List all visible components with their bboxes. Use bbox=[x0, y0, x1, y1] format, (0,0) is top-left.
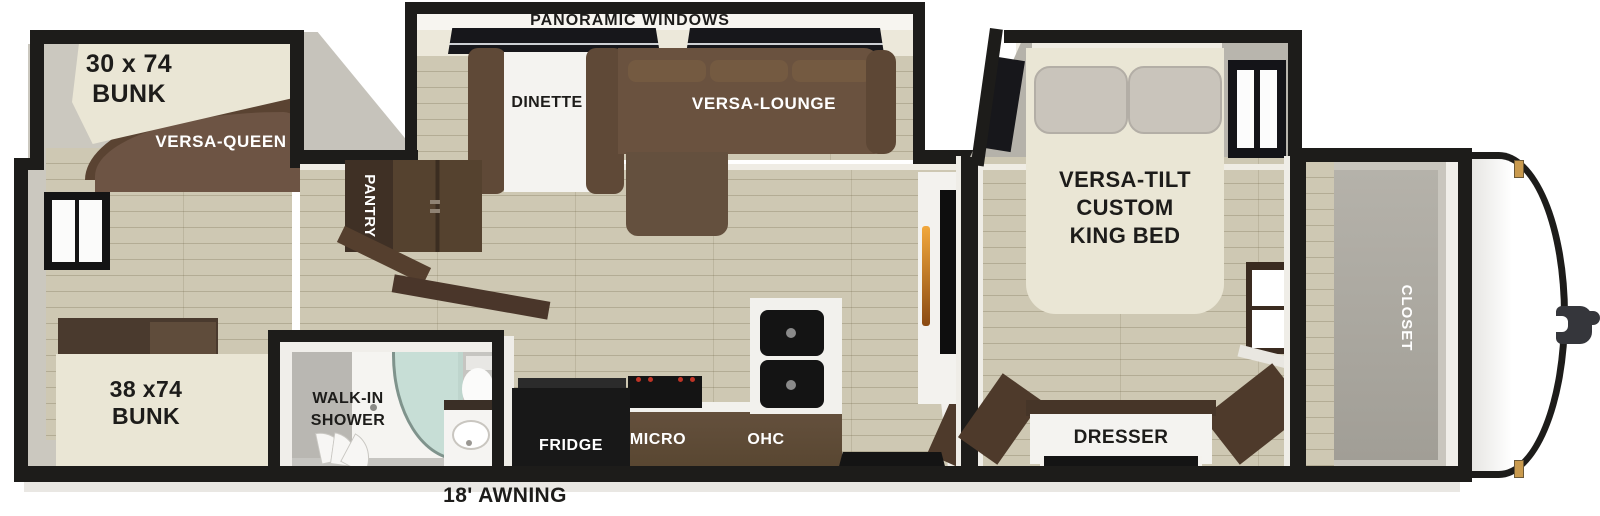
bedroom-right-window-pane2 bbox=[1260, 70, 1277, 148]
bunk-38x74-label-line2: BUNK bbox=[66, 403, 226, 430]
cooktop-knob-3 bbox=[678, 377, 683, 382]
pantry-handle-top bbox=[430, 200, 440, 204]
hitch-notch bbox=[1556, 316, 1568, 332]
bottom-wall bbox=[14, 466, 1472, 482]
living-slide-wall-right bbox=[913, 2, 925, 164]
closet-wall-left bbox=[1290, 148, 1306, 466]
king-bed-label-line3: KING BED bbox=[1030, 222, 1220, 250]
walk-in-shower-label-line2: SHOWER bbox=[296, 410, 400, 432]
king-bed-label-line1: VERSA-TILT bbox=[1030, 166, 1220, 194]
front-wall-band bbox=[1446, 162, 1458, 466]
versa-lounge-label: VERSA-LOUNGE bbox=[664, 94, 864, 114]
bedroom-slide-wall-right bbox=[1288, 30, 1302, 160]
living-slide-wall-top bbox=[405, 2, 925, 14]
dinette-label: DINETTE bbox=[502, 94, 592, 112]
bathroom-left-band bbox=[280, 342, 292, 466]
pantry-cabinet-front bbox=[393, 160, 482, 252]
sofa-chaise bbox=[626, 152, 728, 236]
front-cap bbox=[1472, 152, 1568, 478]
sofa-cushion-2 bbox=[710, 60, 788, 82]
vanity-backsplash bbox=[444, 400, 494, 410]
hitch-arm bbox=[1586, 311, 1600, 325]
versa-queen-label: VERSA-QUEEN bbox=[150, 133, 292, 152]
closet-wall-face bbox=[1334, 170, 1438, 460]
rear-wall-top bbox=[30, 30, 304, 44]
bunk-headboard-light bbox=[150, 322, 216, 356]
bathroom-top-band bbox=[280, 342, 492, 352]
vanity-sink bbox=[452, 420, 490, 450]
bathroom-wall-right bbox=[492, 330, 504, 466]
bedroom-slide-wall-top bbox=[1004, 30, 1300, 43]
bathroom-wall-left bbox=[268, 330, 280, 466]
cooktop-knob-2 bbox=[648, 377, 653, 382]
sofa-cushion-1 bbox=[628, 60, 706, 82]
living-slide-wall-left bbox=[405, 2, 417, 164]
bedroom-right-window-pane1 bbox=[1237, 70, 1254, 148]
closet-floor-strip bbox=[1306, 162, 1334, 466]
bunk-30x74-label-line2: BUNK bbox=[73, 80, 185, 110]
rear-wall-right bbox=[290, 30, 304, 168]
cap-marker-top bbox=[1514, 160, 1524, 178]
vanity-faucet bbox=[466, 440, 472, 446]
walk-in-shower-label-line1: WALK-IN bbox=[296, 388, 400, 410]
king-pillow-left bbox=[1034, 66, 1128, 134]
sofa-cushion-3 bbox=[792, 60, 872, 82]
rear-angled-wall-face bbox=[302, 32, 414, 154]
cap-marker-bottom bbox=[1514, 460, 1524, 478]
fridge-label: FRIDGE bbox=[518, 436, 624, 456]
king-bed-label-line2: CUSTOM bbox=[1030, 194, 1220, 222]
closet-label: CLOSET bbox=[1396, 268, 1416, 368]
awning-label: 18' AWNING bbox=[400, 483, 610, 509]
fireplace-glow bbox=[922, 226, 930, 326]
sink-drain-upper bbox=[786, 328, 796, 338]
front-wall bbox=[1458, 150, 1472, 466]
cooktop-knob-4 bbox=[690, 377, 695, 382]
main-wall-top-right bbox=[1288, 148, 1472, 162]
fridge bbox=[512, 388, 630, 476]
dresser-label: DRESSER bbox=[1030, 424, 1212, 452]
rear-wall-left-lower bbox=[14, 158, 28, 482]
rear-wall-left-upper bbox=[30, 30, 44, 170]
bunk-38x74-label-line1: 38 x74 bbox=[66, 376, 226, 403]
dinette-table bbox=[504, 52, 590, 192]
cooktop-knob-1 bbox=[636, 377, 641, 382]
pantry-handle-bottom bbox=[430, 209, 440, 213]
sofa-arm bbox=[866, 50, 896, 154]
exterior-shadow-strip bbox=[24, 482, 1460, 492]
king-pillow-right bbox=[1128, 66, 1222, 134]
ohc-label: OHC bbox=[724, 430, 808, 450]
bathroom-wall-top bbox=[268, 330, 504, 342]
rear-window-pane-left bbox=[52, 200, 75, 262]
floorplan: 30 x 74 BUNK VERSA-QUEEN 38 x74 BUNK PAN… bbox=[0, 0, 1600, 516]
sink-drain-lower bbox=[786, 380, 796, 390]
bunk-30x74-label-line1: 30 x 74 bbox=[73, 50, 185, 80]
rear-window-pane-right bbox=[79, 200, 102, 262]
